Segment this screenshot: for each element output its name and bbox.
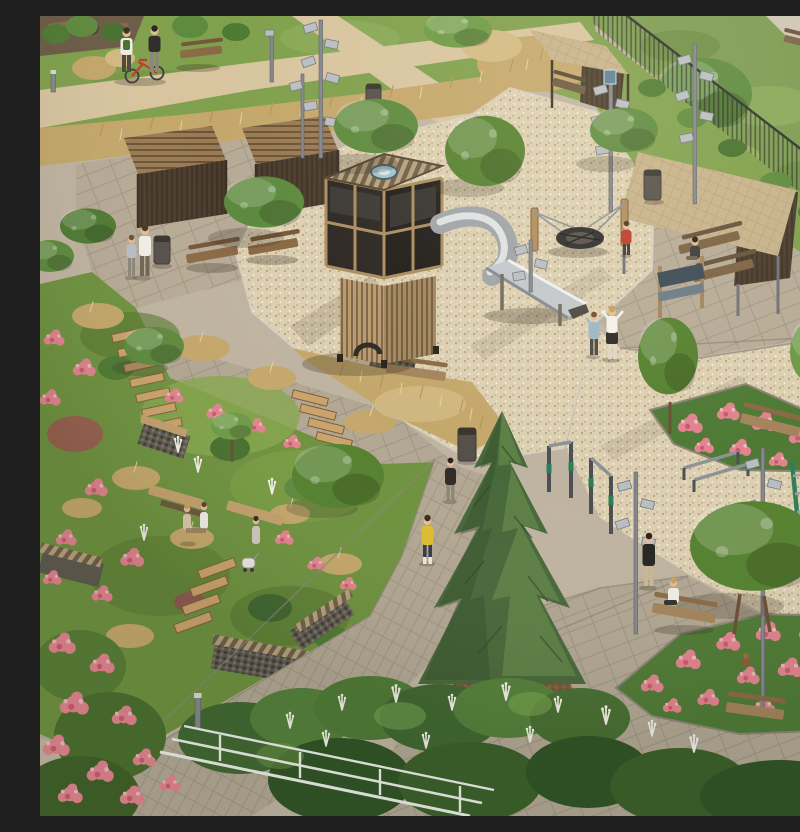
light-overlay <box>40 16 800 816</box>
park-scene-svg: Aerial 3D architectural render — landsca… <box>40 16 800 816</box>
park-aerial-render: Bird's-eye daytime visualization of a co… <box>40 16 800 816</box>
